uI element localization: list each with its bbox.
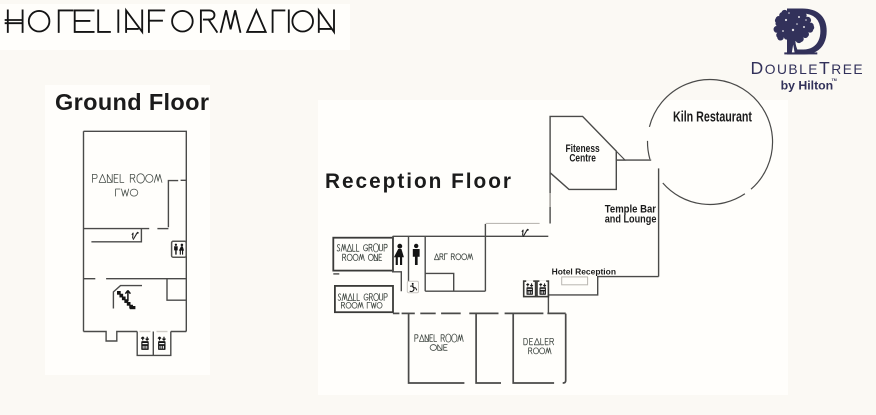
svg-text:Reception Floor: Reception Floor	[325, 170, 511, 193]
svg-text:by Hilton: by Hilton	[781, 78, 834, 92]
svg-text:TM: TM	[832, 78, 837, 82]
svg-text:Kiln Restaurant: Kiln Restaurant	[673, 109, 752, 125]
svg-text:Ground Floor: Ground Floor	[55, 89, 209, 115]
svg-text:Centre: Centre	[569, 152, 596, 164]
svg-text:and Lounge: and Lounge	[605, 214, 657, 226]
svg-text:Hotel Reception: Hotel Reception	[552, 267, 616, 277]
